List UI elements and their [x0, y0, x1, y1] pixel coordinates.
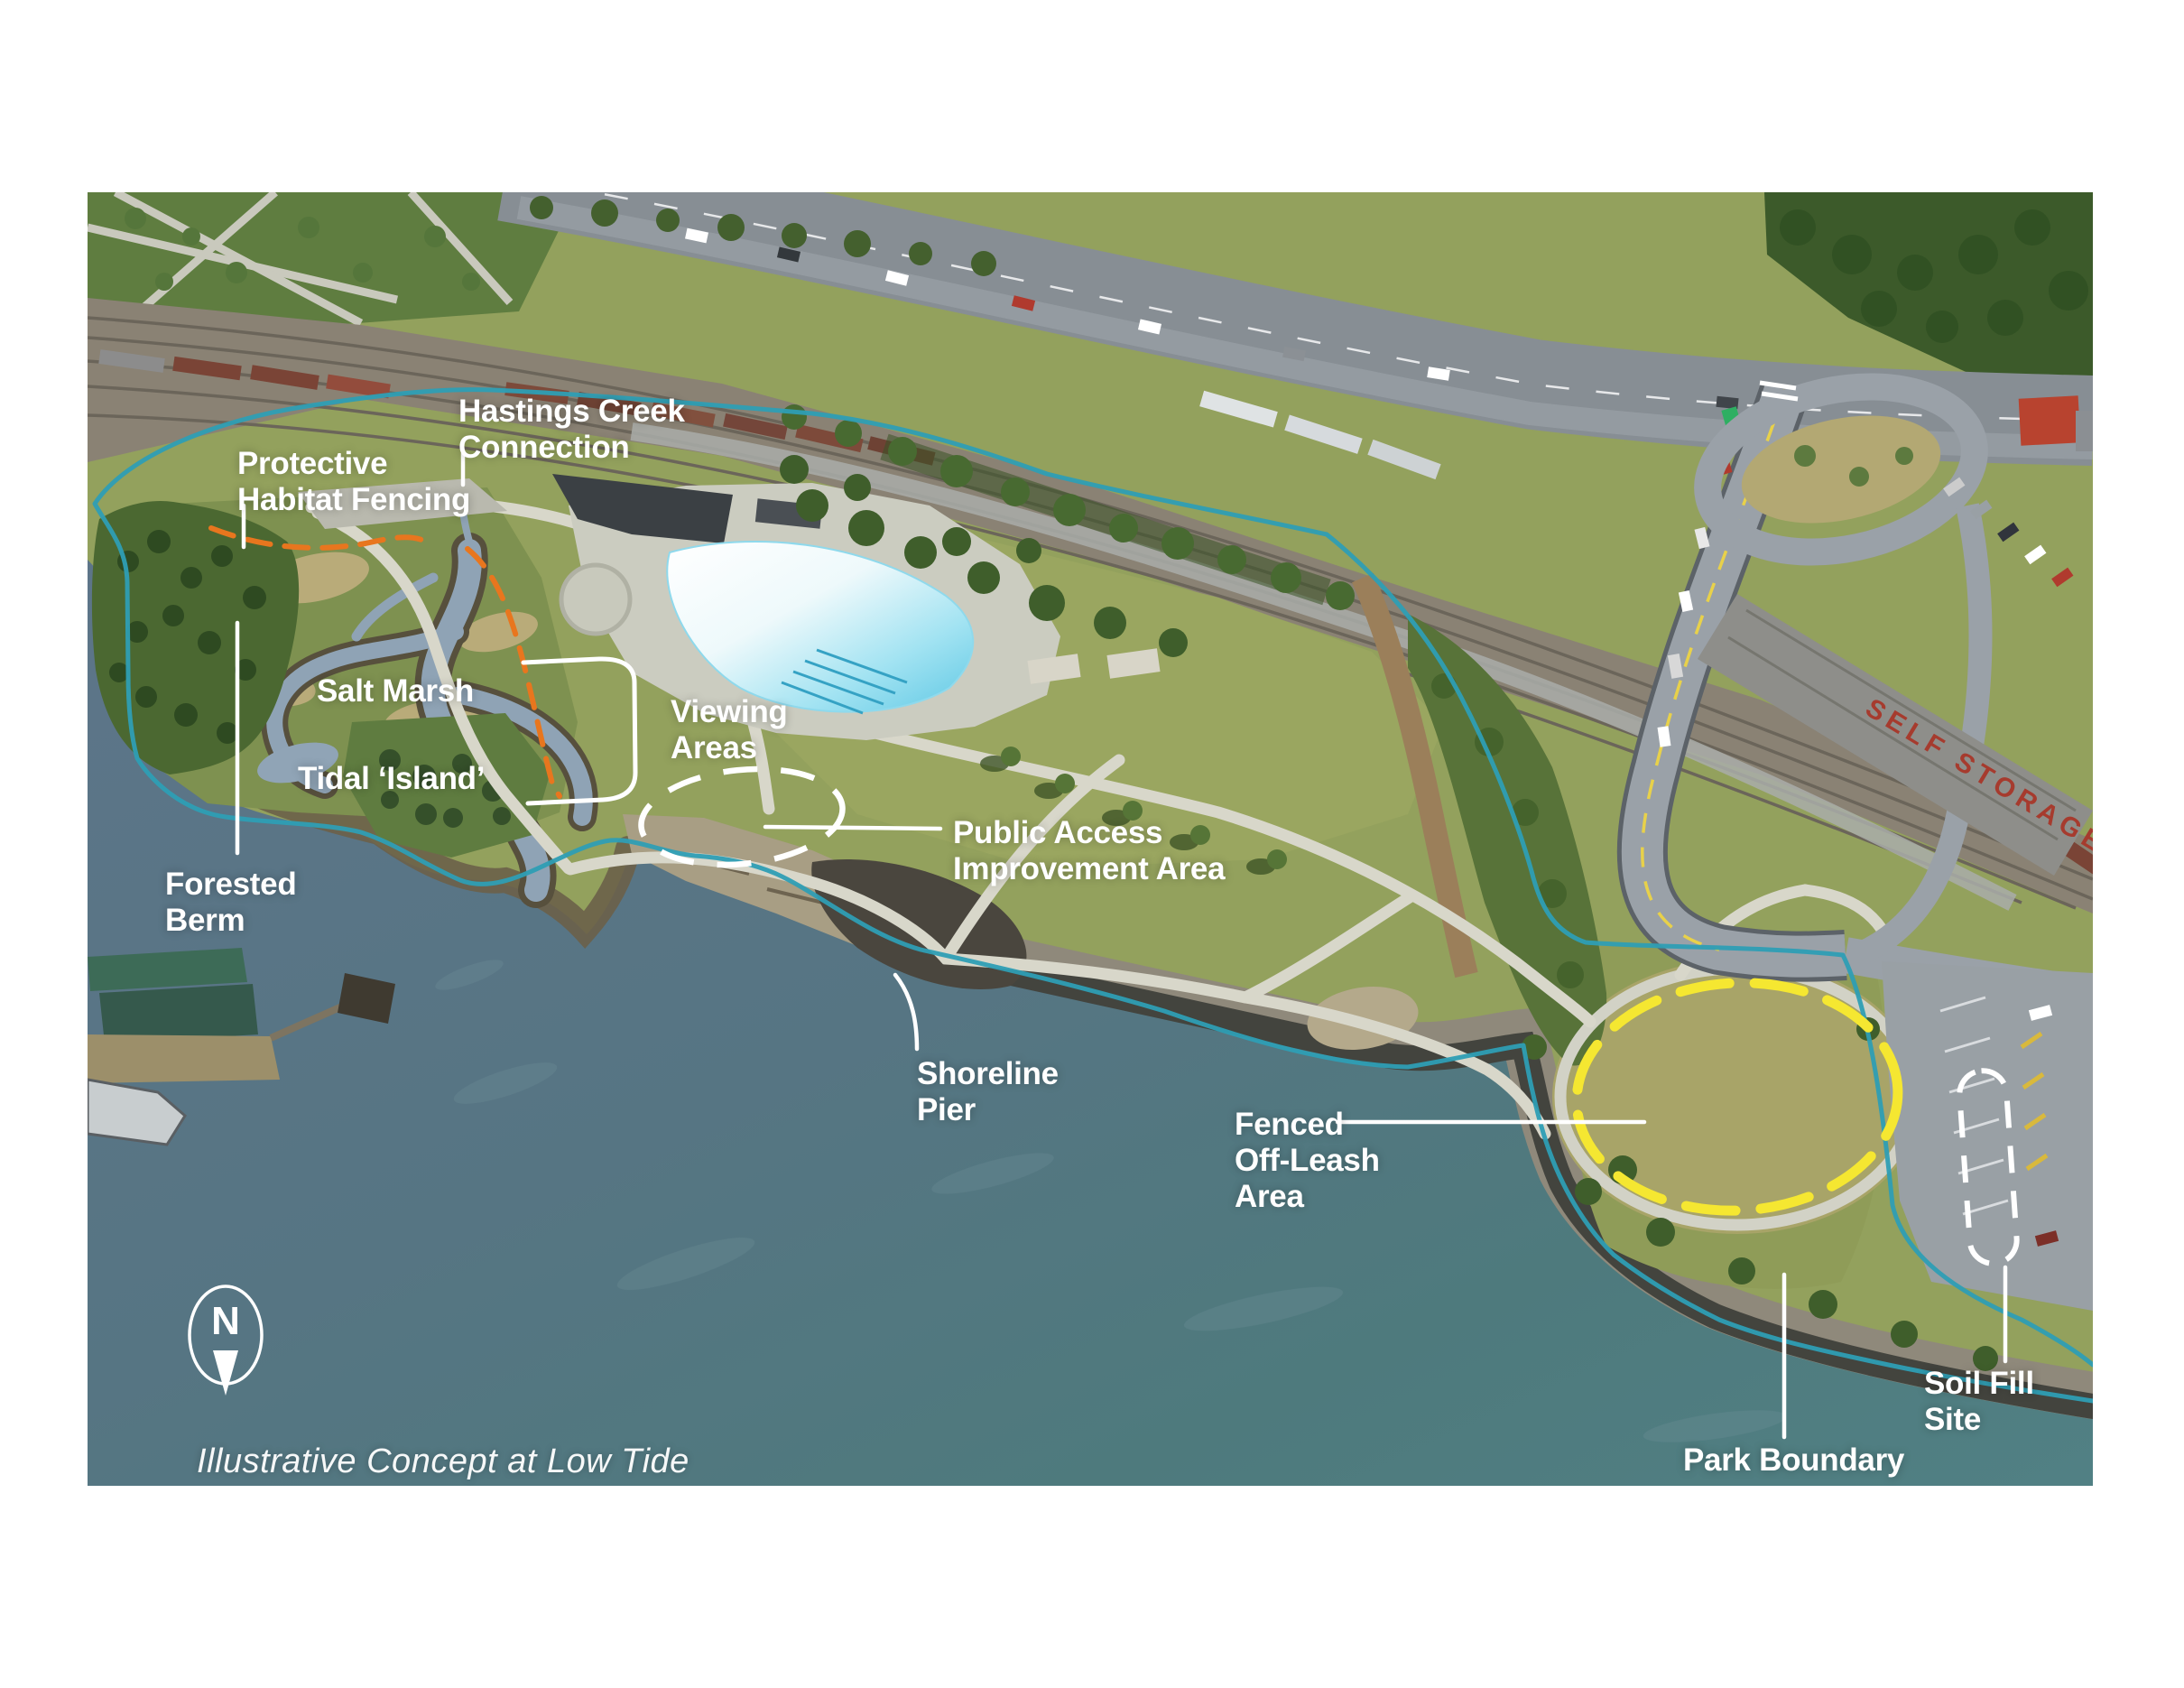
label-forested-berm: Forested Berm	[165, 867, 296, 939]
aerial-photo: SELF STORAGE	[88, 192, 2093, 1486]
circular-plaza	[561, 565, 630, 634]
label-hastings-creek-connection: Hastings Creek Connection	[458, 394, 685, 466]
label-soil-fill-site: Soil Fill Site	[1924, 1366, 2093, 1438]
label-public-access-improvement-area: Public Access Improvement Area	[953, 815, 1225, 887]
compass-letter: N	[211, 1299, 240, 1343]
label-tidal-island: Tidal ‘Island’	[298, 761, 485, 797]
label-shoreline-pier: Shoreline Pier	[917, 1056, 1059, 1128]
label-salt-marsh: Salt Marsh	[317, 673, 474, 710]
label-park-boundary: Park Boundary	[1683, 1442, 1904, 1479]
label-fenced-off-leash-area: Fenced Off-Leash Area	[1235, 1107, 1380, 1215]
label-protective-habitat-fencing: Protective Habitat Fencing	[237, 446, 470, 518]
leader-public-access	[765, 827, 940, 829]
map-caption: Illustrative Concept at Low Tide	[197, 1442, 689, 1481]
label-viewing-areas: Viewing Areas	[671, 694, 788, 766]
off-leash-knoll	[1552, 960, 1922, 1234]
